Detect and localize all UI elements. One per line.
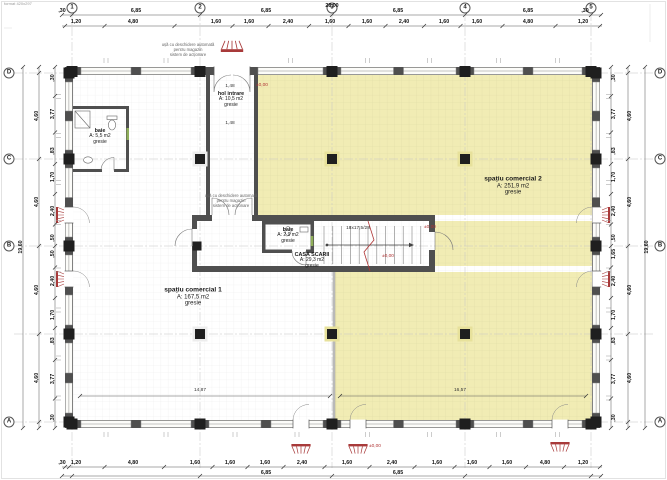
floor-plan-sheet: 12345DCBADCBA28,00,306,856,856,856,85,30… [0, 0, 667, 480]
sheet-corner-note: format 420x297 [4, 1, 32, 6]
floor-plan-drawing [0, 0, 667, 480]
